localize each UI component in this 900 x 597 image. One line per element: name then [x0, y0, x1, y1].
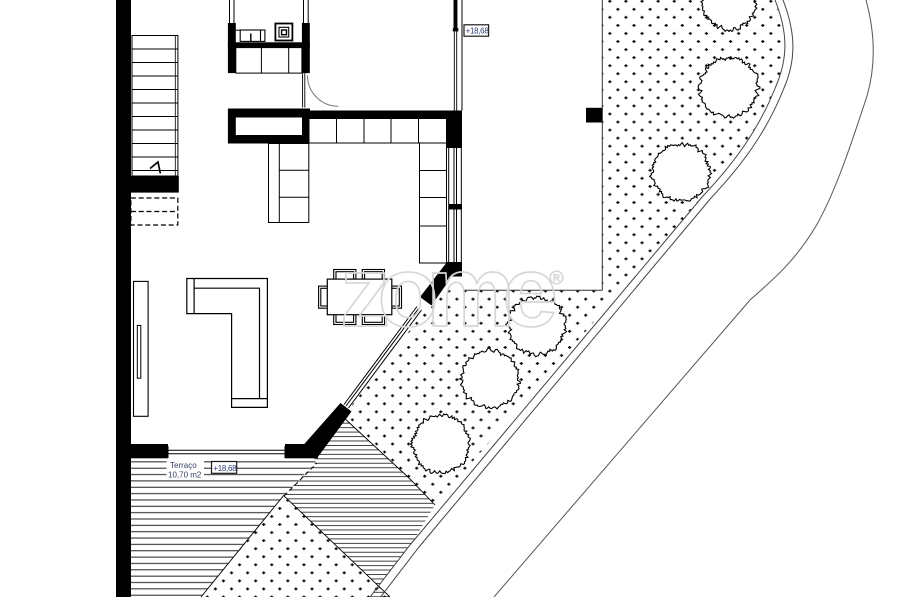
svg-text:10,70 m2: 10,70 m2 — [168, 471, 202, 480]
svg-text:zome: zome — [340, 236, 556, 348]
svg-text:+18,68: +18,68 — [213, 464, 237, 473]
svg-text:+18,68: +18,68 — [466, 27, 490, 36]
svg-text:Terraço: Terraço — [170, 461, 197, 470]
svg-text:R: R — [553, 273, 560, 283]
